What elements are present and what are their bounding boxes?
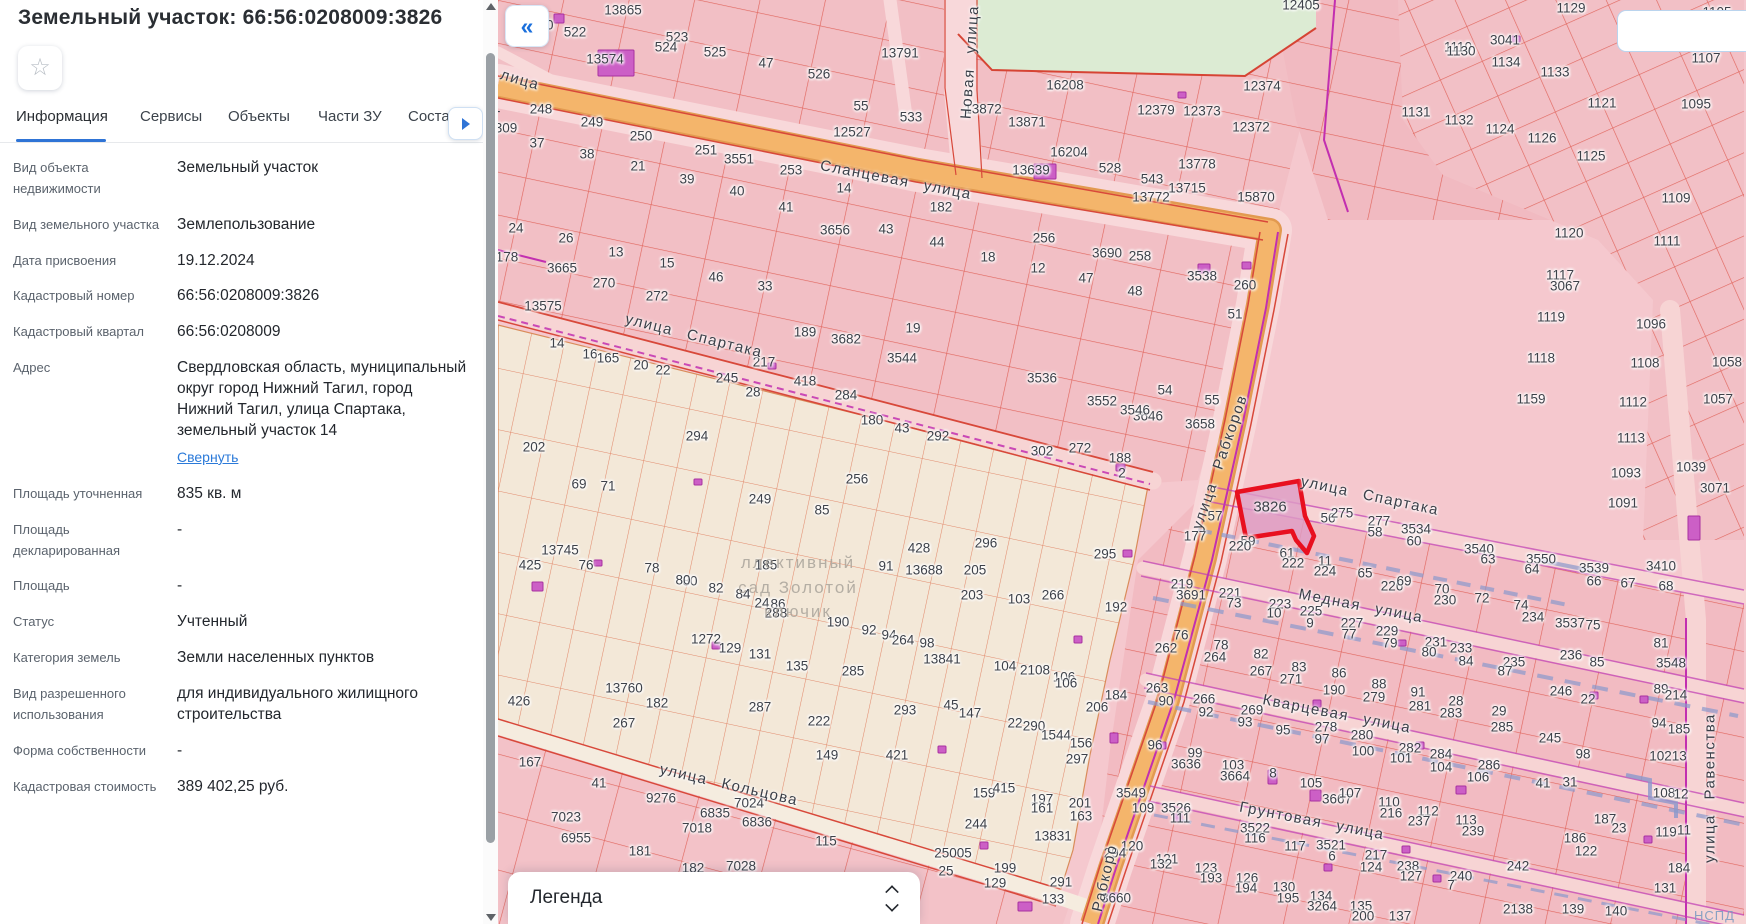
attribute-row: СтатусУчтенный bbox=[13, 612, 468, 633]
attribute-value: 66:56:0208009 bbox=[177, 322, 468, 343]
building-footprint bbox=[1688, 516, 1700, 540]
building-footprint bbox=[712, 642, 720, 649]
building-footprint bbox=[532, 582, 543, 591]
building-footprint bbox=[1116, 464, 1125, 471]
legend-panel[interactable]: Легенда bbox=[508, 872, 920, 924]
building-footprint bbox=[1108, 893, 1118, 901]
building-footprint bbox=[1313, 700, 1321, 707]
attribute-row: Вид объекта недвижимостиЗемельный участо… bbox=[13, 158, 468, 200]
collapse-address-link[interactable]: Свернуть bbox=[177, 448, 238, 467]
building-footprint bbox=[1074, 636, 1082, 643]
attribute-value: 835 кв. м bbox=[177, 484, 468, 505]
attribute-value: - bbox=[177, 520, 468, 562]
cadastral-map[interactable]: 2052213865523524525475261379113574533309… bbox=[498, 0, 1746, 924]
star-icon: ☆ bbox=[29, 56, 51, 80]
map-search-box[interactable] bbox=[1617, 10, 1746, 52]
attribute-row: Площадь уточненная835 кв. м bbox=[13, 484, 468, 505]
building-footprint bbox=[1018, 902, 1032, 911]
attribute-label: Статус bbox=[13, 612, 163, 633]
building-footprint bbox=[598, 50, 634, 76]
attribute-label: Площадь bbox=[13, 576, 163, 597]
attribute-value: 389 402,25 руб. bbox=[177, 777, 468, 798]
building-footprint bbox=[1416, 742, 1424, 749]
building-footprint bbox=[1242, 262, 1251, 269]
attribute-label: Категория земель bbox=[13, 648, 163, 669]
attribute-label: Кадастровый номер bbox=[13, 286, 163, 307]
attribute-label: Вид объекта недвижимости bbox=[13, 158, 163, 200]
attribute-row: Форма собственности- bbox=[13, 741, 468, 762]
attribute-row: Кадастровый квартал66:56:0208009 bbox=[13, 322, 468, 343]
building-footprint bbox=[1310, 790, 1321, 801]
map-canvas bbox=[498, 0, 1746, 924]
building-footprint bbox=[694, 479, 702, 485]
building-footprint bbox=[1034, 164, 1056, 179]
building-footprint bbox=[1398, 640, 1406, 646]
building-footprint bbox=[1590, 692, 1598, 699]
attribute-label: Форма собственности bbox=[13, 741, 163, 762]
building-footprint bbox=[768, 363, 776, 369]
tab-4[interactable]: Соста bbox=[408, 108, 450, 125]
building-footprint bbox=[1402, 846, 1410, 853]
attribute-value: Земли населенных пунктов bbox=[177, 648, 468, 669]
object-attributes: Вид объекта недвижимостиЗемельный участо… bbox=[13, 158, 468, 798]
attribute-label: Дата присвоения bbox=[13, 251, 163, 272]
building-footprint bbox=[1674, 658, 1682, 665]
tab-bar: ИнформацияСервисыОбъектыЧасти ЗУСостаГ bbox=[0, 100, 498, 143]
attribute-row: Вид разрешенного использованиядля индиви… bbox=[13, 684, 468, 726]
attribute-label: Кадастровая стоимость bbox=[13, 777, 163, 798]
cadastral-app: Земельный участок: 66:56:0208009:3826 ☆ … bbox=[0, 0, 1746, 924]
attribute-value: 66:56:0208009:3826 bbox=[177, 286, 468, 307]
attribute-label: Площадь уточненная bbox=[13, 484, 163, 505]
attribute-value: Свердловская область, муниципальный окру… bbox=[177, 358, 468, 469]
building-footprint bbox=[1174, 814, 1182, 821]
building-footprint bbox=[1456, 786, 1466, 794]
scrollbar-thumb[interactable] bbox=[486, 53, 495, 843]
building-footprint bbox=[1512, 36, 1520, 42]
attribute-label: Вид разрешенного использования bbox=[13, 684, 163, 726]
legend-expand-icon[interactable] bbox=[886, 886, 898, 911]
double-chevron-left-icon: « bbox=[521, 13, 534, 40]
attribute-value: Земельный участок bbox=[177, 158, 468, 200]
building-footprint bbox=[938, 746, 946, 753]
attribute-value: - bbox=[177, 576, 468, 597]
attribute-label: Площадь декларированная bbox=[13, 520, 163, 562]
building-footprint bbox=[1123, 550, 1132, 557]
attribute-row: Дата присвоения19.12.2024 bbox=[13, 251, 468, 272]
building-footprint bbox=[1433, 875, 1441, 882]
building-footprint bbox=[1324, 864, 1332, 871]
attribute-label: Вид земельного участка bbox=[13, 215, 163, 236]
attribute-row: Площадь декларированная- bbox=[13, 520, 468, 562]
active-tab-underline bbox=[16, 139, 106, 142]
attribute-row: Площадь- bbox=[13, 576, 468, 597]
building-footprint bbox=[1198, 264, 1210, 273]
attribute-value: для индивидуального жилищного строительс… bbox=[177, 684, 468, 726]
building-footprint bbox=[1178, 92, 1186, 98]
favorite-button[interactable]: ☆ bbox=[18, 46, 62, 90]
attribute-value: Учтенный bbox=[177, 612, 468, 633]
scroll-down-arrow-icon[interactable] bbox=[486, 914, 496, 921]
attribute-value: 19.12.2024 bbox=[177, 251, 468, 272]
building-footprint bbox=[1110, 733, 1118, 743]
page-title: Земельный участок: 66:56:0208009:3826 bbox=[18, 6, 458, 30]
attribute-row: Кадастровая стоимость389 402,25 руб. bbox=[13, 777, 468, 798]
building-footprint bbox=[594, 560, 602, 566]
tabs-next-button[interactable] bbox=[448, 107, 483, 140]
attribute-row: Категория земельЗемли населенных пунктов bbox=[13, 648, 468, 669]
building-footprint bbox=[1644, 836, 1652, 843]
tab-2[interactable]: Объекты bbox=[228, 108, 290, 125]
legend-title: Легенда bbox=[530, 887, 602, 909]
scroll-up-arrow-icon[interactable] bbox=[486, 3, 496, 10]
building-footprint bbox=[554, 14, 564, 23]
building-footprint bbox=[980, 842, 988, 849]
attribute-value: Землепользование bbox=[177, 215, 468, 236]
building-footprint bbox=[1158, 742, 1166, 749]
chevron-right-icon bbox=[462, 118, 470, 130]
attribute-label: Адрес bbox=[13, 358, 163, 469]
attribute-row: АдресСвердловская область, муниципальный… bbox=[13, 358, 468, 469]
object-info-panel: Земельный участок: 66:56:0208009:3826 ☆ … bbox=[0, 0, 498, 924]
attribute-row: Вид земельного участкаЗемлепользование bbox=[13, 215, 468, 236]
collapse-panel-button[interactable]: « bbox=[505, 5, 549, 47]
panel-scrollbar[interactable] bbox=[483, 0, 498, 924]
building-footprint bbox=[1640, 696, 1648, 703]
attribute-value: - bbox=[177, 741, 468, 762]
tab-3[interactable]: Части ЗУ bbox=[318, 108, 382, 125]
attribute-row: Кадастровый номер66:56:0208009:3826 bbox=[13, 286, 468, 307]
road-corridor bbox=[960, 0, 968, 178]
tab-0[interactable]: Информация bbox=[16, 108, 108, 125]
building-footprint bbox=[1268, 770, 1277, 784]
tab-1[interactable]: Сервисы bbox=[140, 108, 202, 125]
attribute-label: Кадастровый квартал bbox=[13, 322, 163, 343]
